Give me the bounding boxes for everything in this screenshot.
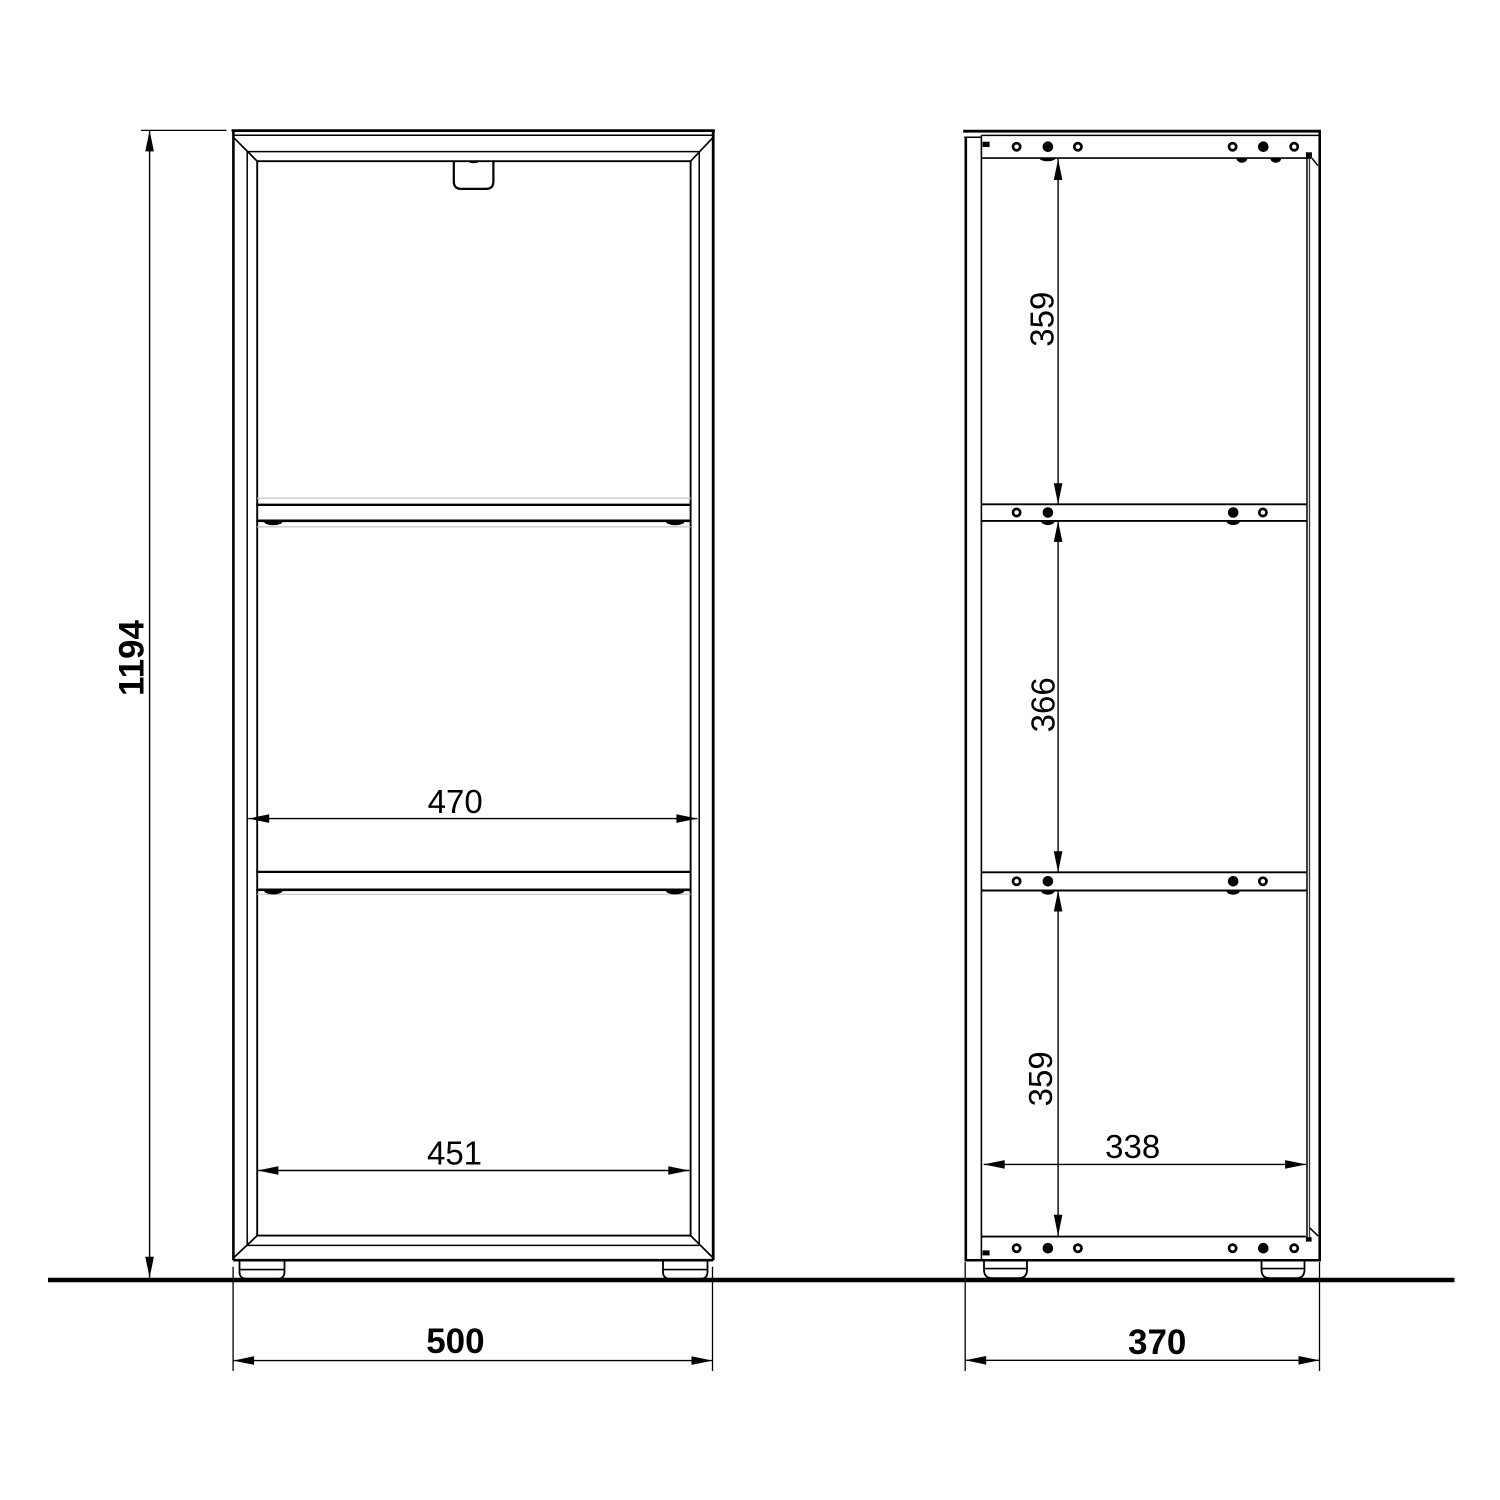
svg-text:359: 359 [1023,292,1060,347]
svg-text:370: 370 [1128,1323,1186,1362]
svg-text:500: 500 [426,1322,484,1361]
svg-text:1194: 1194 [112,620,151,696]
svg-text:470: 470 [428,783,483,820]
svg-text:366: 366 [1025,677,1062,732]
svg-text:338: 338 [1105,1128,1160,1165]
svg-text:359: 359 [1022,1051,1059,1106]
svg-text:451: 451 [427,1135,482,1172]
